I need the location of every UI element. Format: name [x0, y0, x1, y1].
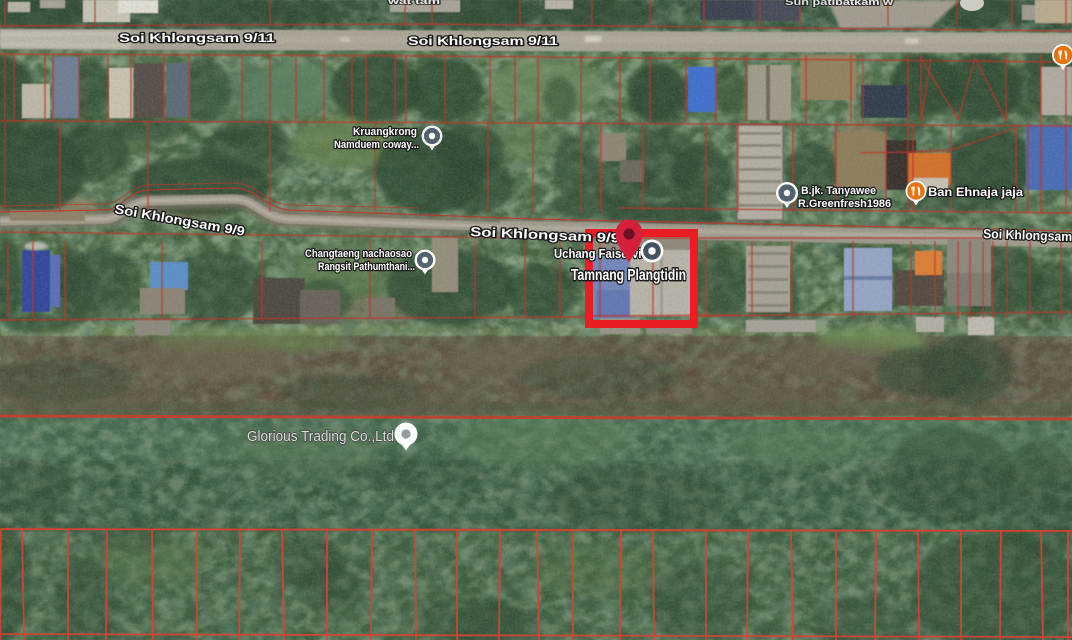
svg-text:Rangsit Pathumthani...: Rangsit Pathumthani... [318, 261, 415, 273]
svg-text:Ban Ehnaja jaja: Ban Ehnaja jaja [928, 185, 1023, 199]
svg-text:B.jk. Tanyawee: B.jk. Tanyawee [801, 185, 876, 197]
svg-text:Uchang Faiservice: Uchang Faiservice [554, 246, 654, 261]
svg-text:wat tam: wat tam [386, 0, 440, 6]
svg-text:Glorious Trading Co.,Ltd: Glorious Trading Co.,Ltd [247, 429, 394, 445]
svg-text:Namduem coway...: Namduem coway... [334, 139, 419, 151]
svg-text:R.Greenfresh1986: R.Greenfresh1986 [798, 198, 891, 210]
svg-text:Soi Khlongsam 9/11: Soi Khlongsam 9/11 [408, 34, 558, 48]
svg-text:Soi Khlongsam 9/11: Soi Khlongsam 9/11 [119, 31, 275, 45]
svg-text:Sun patibatkam w: Sun patibatkam w [785, 0, 894, 7]
svg-text:Changtaeng nachaosao: Changtaeng nachaosao [305, 248, 412, 260]
svg-text:Kruangkrong: Kruangkrong [353, 126, 417, 138]
svg-text:Tamnang Plangtidin: Tamnang Plangtidin [571, 267, 686, 284]
svg-text:Soi Khlongsam: Soi Khlongsam [983, 226, 1072, 244]
